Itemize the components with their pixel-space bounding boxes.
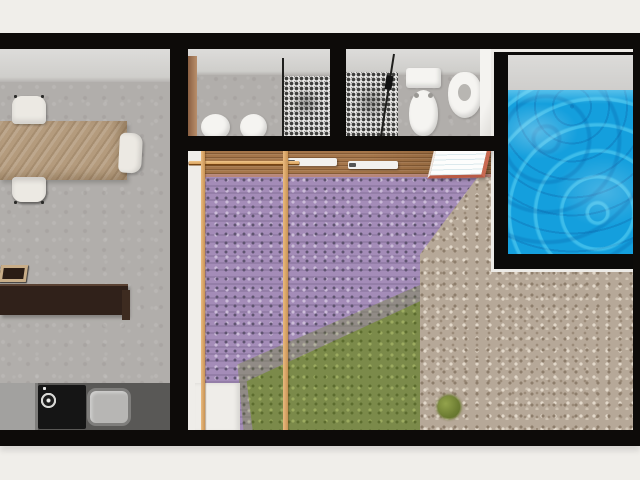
shower-drain-shading [291, 85, 321, 121]
kitchen-sink [87, 388, 131, 426]
bar-stool-row [0, 265, 120, 283]
far-wall-shading [188, 49, 330, 75]
kitchen-bar-island [0, 284, 128, 315]
dining-chair [12, 96, 46, 124]
gas-stove [38, 385, 86, 429]
dining-kitchen-room [0, 49, 172, 432]
bathroom-2 [346, 49, 496, 140]
bidet [448, 72, 482, 118]
pool-deck-strip [508, 55, 636, 90]
wall-below-bathrooms [188, 136, 500, 151]
wall-between-bathrooms [330, 33, 346, 151]
kitchen-counter [0, 383, 172, 431]
open-door [188, 56, 197, 136]
shower-glass-partition [282, 58, 284, 136]
toilet-tank [406, 68, 441, 88]
bush [438, 396, 460, 418]
toilet-bowl [409, 90, 438, 136]
stove-knob-row [43, 387, 69, 391]
bathroom-1 [188, 49, 330, 136]
floor-plan-render [0, 0, 640, 480]
kitchen-counter-left [0, 383, 38, 431]
stove-burner-grid [41, 393, 83, 427]
dining-chair [12, 177, 46, 202]
wall-dining-garden [170, 33, 188, 446]
bar-stool [0, 265, 28, 282]
dining-chairs-bottom-row [12, 177, 100, 202]
sun-lounger [348, 161, 398, 169]
pool-water [508, 90, 636, 254]
dining-chairs-top-row [12, 96, 100, 124]
sun-mat [427, 148, 491, 179]
far-wall-shading [0, 49, 172, 82]
swimming-pool [494, 52, 636, 269]
dining-table [0, 121, 127, 180]
pergola-post [201, 150, 205, 432]
stove-knob [43, 387, 46, 390]
stove-burner [41, 393, 56, 408]
bush-row [438, 396, 628, 420]
wall-bottom [0, 430, 640, 446]
mosaic-shower-floor [284, 76, 330, 136]
dining-chair-end [118, 132, 143, 173]
wall-right [633, 33, 640, 446]
wall-top [0, 33, 640, 49]
pergola-post [283, 150, 288, 430]
